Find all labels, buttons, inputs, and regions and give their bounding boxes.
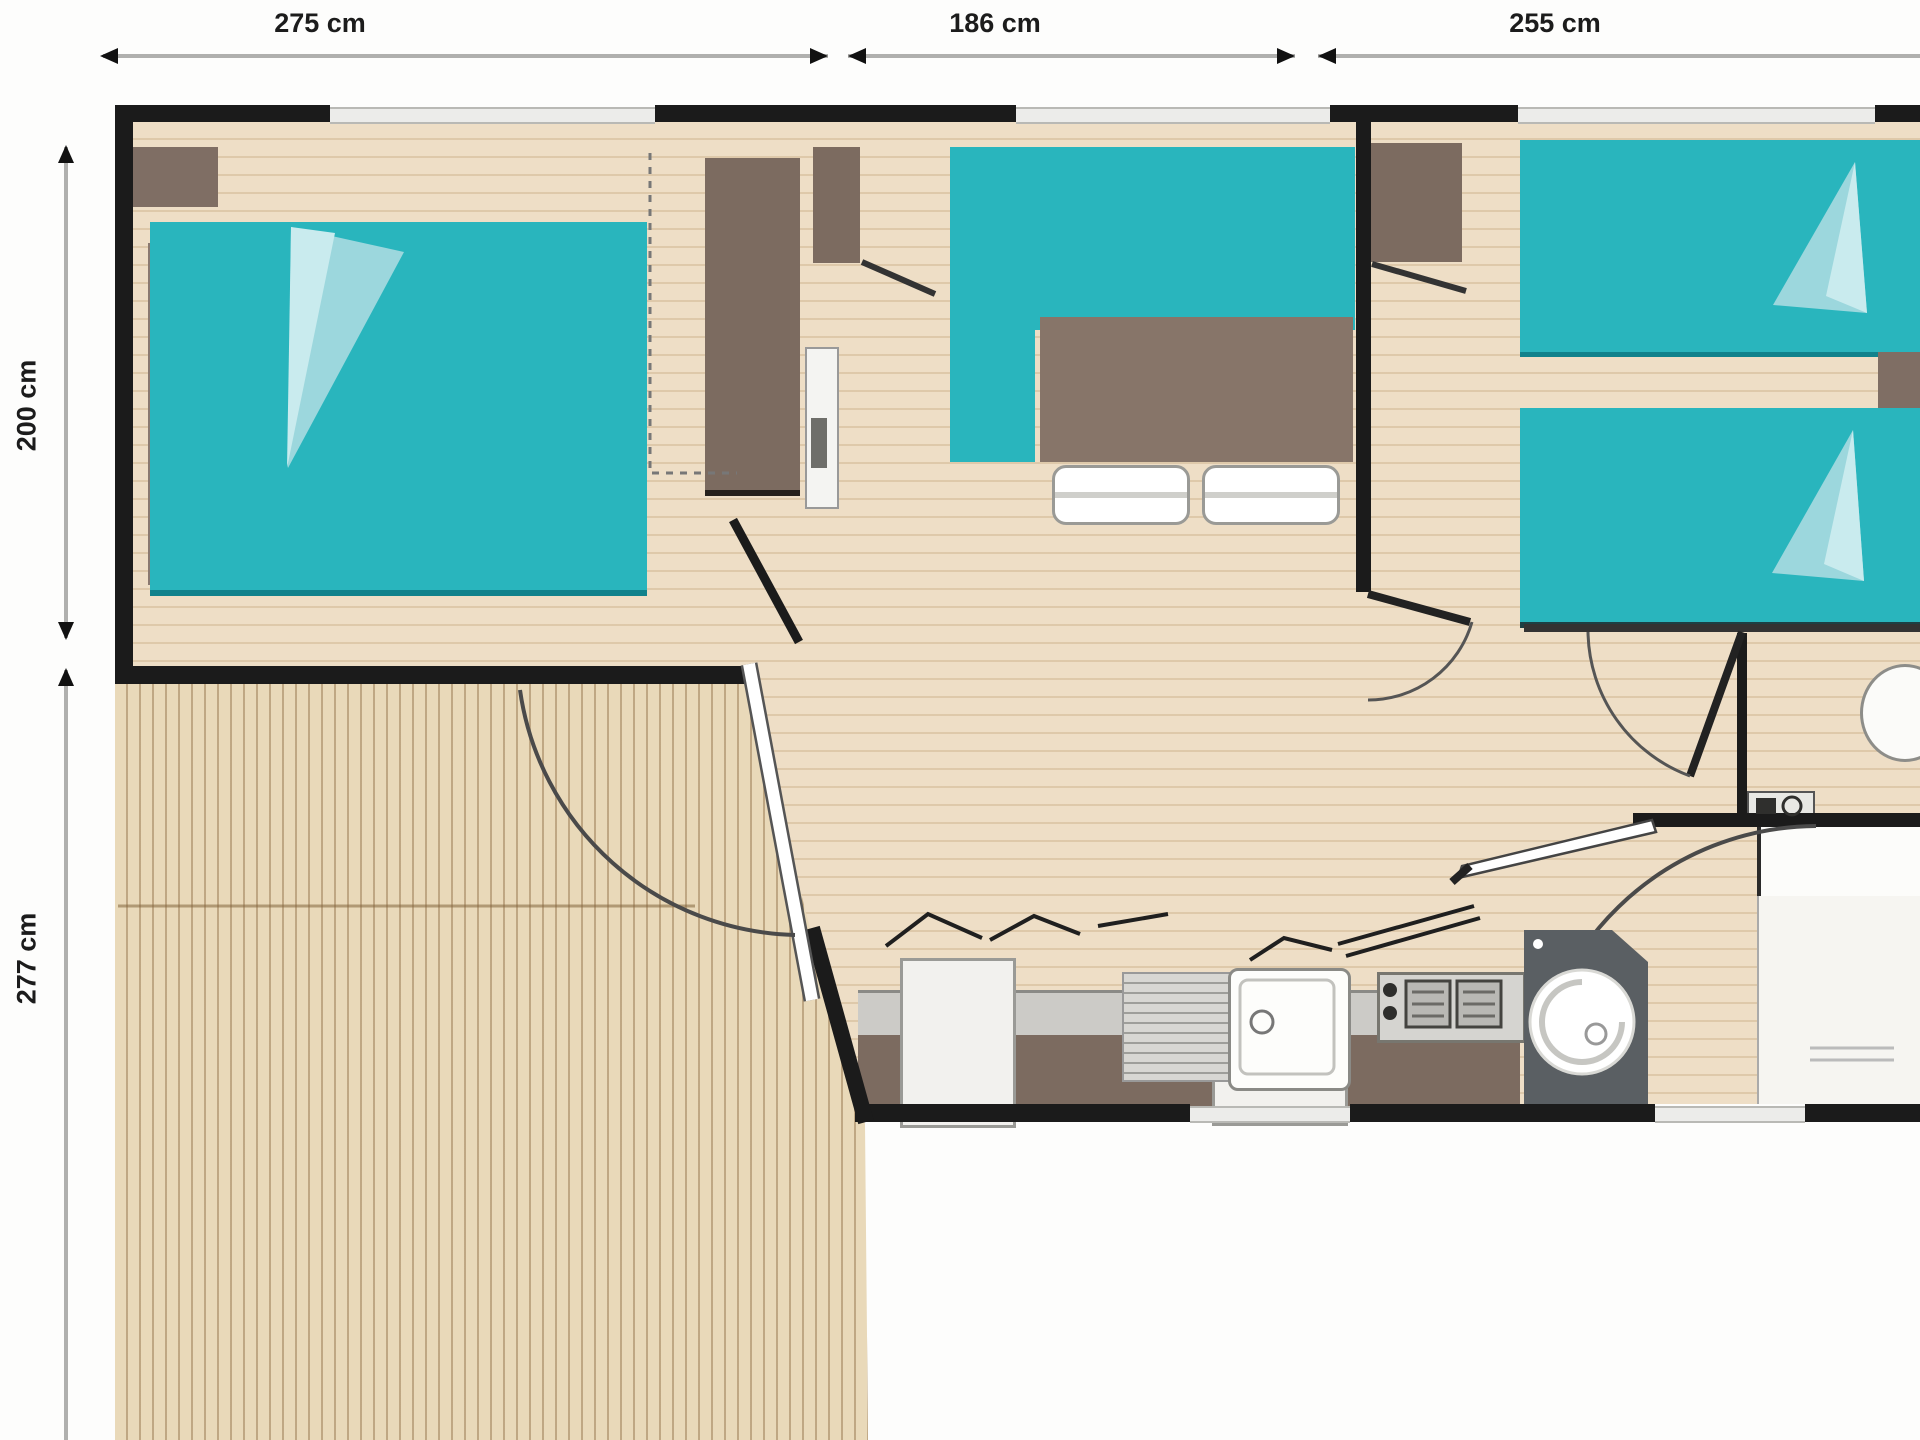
window-master — [330, 107, 655, 124]
wall-top — [1330, 105, 1518, 122]
sofa-return — [950, 330, 1035, 462]
window-kitchen — [1190, 1106, 1350, 1123]
wall-left — [115, 105, 133, 684]
nightstand — [1878, 352, 1920, 408]
dim-line-top-3 — [1318, 54, 1920, 58]
wall-bottom — [1805, 1104, 1920, 1122]
wardrobe-hall — [1370, 143, 1462, 262]
dim-label-top-2: 186 cm — [925, 8, 1065, 39]
wall-bottom — [855, 1104, 1190, 1122]
floor-plan: 275 cm 186 cm 255 cm 200 cm 277 cm — [0, 0, 1920, 1440]
window-twin-bedroom — [1518, 107, 1875, 124]
dim-arrow — [848, 48, 866, 64]
dim-line-top-2 — [848, 54, 1295, 58]
dim-label-left-2: 277 cm — [12, 904, 43, 1014]
twin-bed-bottom — [1520, 408, 1920, 628]
wall-living-east — [1356, 122, 1371, 592]
kitchen-sink — [1228, 968, 1351, 1091]
dim-arrow — [58, 668, 74, 686]
dim-label-top-1: 275 cm — [250, 8, 390, 39]
wall-twin-bedroom-south — [1524, 624, 1920, 632]
double-bed — [150, 222, 647, 596]
dim-line-top-1 — [103, 54, 828, 58]
dim-arrow — [100, 48, 118, 64]
shower-floor — [1757, 896, 1920, 1104]
corner-cabinet — [128, 147, 218, 207]
dining-table — [1040, 317, 1353, 462]
dim-label-top-3: 255 cm — [1485, 8, 1625, 39]
dim-arrow — [1277, 48, 1295, 64]
drainboard — [1122, 972, 1232, 1082]
twin-bed-top — [1520, 140, 1920, 357]
fridge-front — [900, 958, 1016, 1128]
window-living — [1016, 107, 1330, 124]
dim-arrow — [810, 48, 828, 64]
dim-arrow — [1318, 48, 1336, 64]
wall-wc-jamb — [1737, 633, 1747, 816]
window-bathroom — [1655, 1106, 1805, 1123]
sofa-bench — [950, 147, 1355, 330]
dining-chair — [1052, 465, 1190, 525]
wall-bottom — [1350, 1104, 1655, 1122]
door-jamb-cabinet — [813, 147, 860, 263]
dim-label-left-1: 200 cm — [12, 351, 43, 461]
wall-top — [655, 105, 1016, 122]
wall-master-south — [115, 666, 752, 684]
shower-cabinet — [1757, 822, 1920, 900]
deck-planks — [115, 684, 868, 1440]
dining-chair — [1202, 465, 1340, 525]
wall-top — [1875, 105, 1920, 122]
dim-arrow — [58, 145, 74, 163]
stove — [1377, 972, 1526, 1043]
wall-wc-bath — [1633, 813, 1920, 827]
dim-line-left-1 — [64, 147, 68, 638]
dim-arrow — [58, 622, 74, 640]
wall-top — [115, 105, 330, 122]
water-heater-panel — [811, 418, 827, 468]
wardrobe-master — [705, 158, 800, 496]
dim-line-left-2 — [64, 670, 68, 1440]
